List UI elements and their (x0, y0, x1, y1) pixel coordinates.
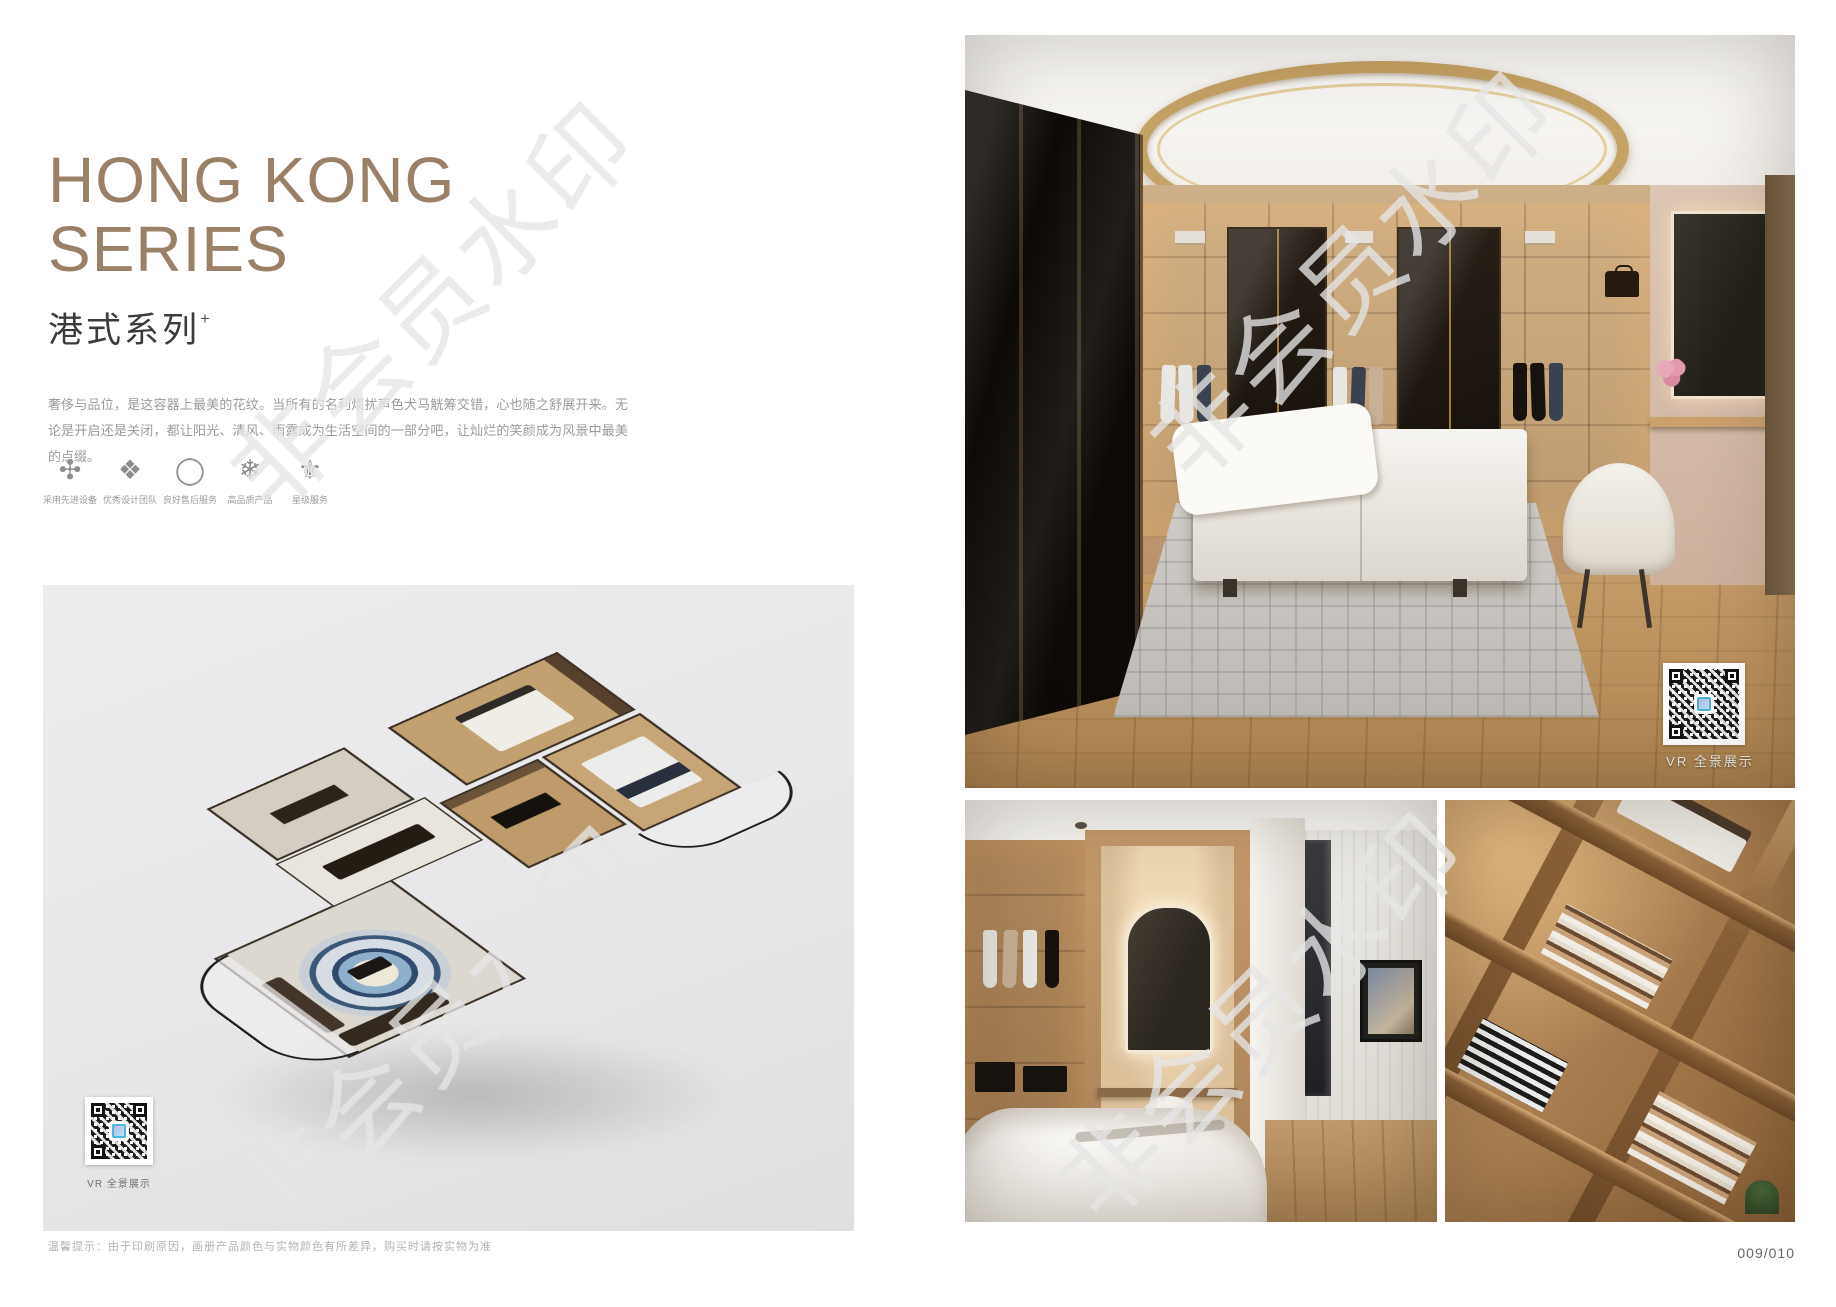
vr-cube-logo-icon (109, 1121, 129, 1141)
series-title-line1: HONG KONG (48, 146, 455, 215)
series-subtitle-cn: 港式系列+ (48, 302, 213, 353)
qr-finder (1669, 669, 1683, 683)
hanging-garment (1530, 363, 1546, 421)
folded-clothes (1345, 231, 1373, 243)
hanging-garment (1045, 930, 1059, 988)
dark-glass-wardrobe (965, 90, 1143, 735)
desk (490, 792, 561, 828)
vr-cube-logo-icon (1694, 694, 1714, 714)
vanity-chair (1563, 463, 1675, 628)
series-title-line2: SERIES (48, 215, 455, 284)
shelf-closeup-photo (1445, 800, 1795, 1222)
vr-badge-label: VR 全景展示 (69, 1175, 169, 1190)
qr-finder (1669, 725, 1683, 739)
qr-finder (91, 1103, 105, 1117)
tall-mirror-frame (1765, 175, 1795, 595)
hanging-garment (1513, 363, 1527, 421)
feature-label: 良好售后服务 (160, 493, 220, 506)
snowflake-icon: ❄ (220, 452, 280, 488)
feature-icon-row: ✣ 采用先进设备 ❖ 优秀设计团队 ◯ 良好售后服务 ❄ 高品质产品 ⚜ 星级服… (40, 452, 340, 506)
shelf-grid (1445, 800, 1795, 1222)
flower-vase (1653, 357, 1687, 387)
series-subtitle-text: 港式系列 (48, 311, 200, 350)
potted-plant (1745, 1180, 1779, 1214)
handbag (1605, 271, 1639, 297)
isometric-floor-plan (84, 652, 822, 1058)
vr-qr-code (1663, 663, 1745, 745)
dark-glass-partition (1305, 840, 1331, 1096)
page-number: 009/010 (1655, 1245, 1795, 1261)
wall-art-frame (1360, 960, 1422, 1042)
feature-item: ⚜ 星级服务 (280, 452, 340, 506)
diamond-ornament-icon: ❖ (100, 452, 160, 488)
led-arch-mirror (1125, 905, 1213, 1053)
folded-clothes (1525, 231, 1555, 243)
folded-clothes (1175, 231, 1205, 243)
feature-label: 高品质产品 (220, 493, 280, 506)
qr-finder (133, 1103, 147, 1117)
fabric-fold (1075, 1119, 1225, 1142)
corridor-floor (1265, 1120, 1437, 1222)
floor-plan-panel: VR 全景展示 (43, 585, 854, 1231)
bed-corner (965, 1108, 1267, 1222)
island-bed (1193, 429, 1527, 581)
hanging-garment (1002, 930, 1018, 988)
hanging-garment (1160, 365, 1176, 423)
feature-label: 星级服务 (280, 493, 340, 506)
storage-box (975, 1062, 1015, 1092)
quatrefoil-ornament-icon: ✣ (40, 452, 100, 488)
hanging-garment (1197, 365, 1211, 423)
qr-finder (1725, 669, 1739, 683)
vr-badge-label: VR 全景展示 (1655, 751, 1765, 770)
series-title: HONG KONG SERIES (48, 146, 455, 284)
feature-item: ❖ 优秀设计团队 (100, 452, 160, 506)
hanging-garment (1549, 363, 1563, 421)
kitchen-island (270, 785, 349, 825)
catalog-page: HONG KONG SERIES 港式系列+ 奢侈与品位，是这容器上最美的花纹。… (0, 0, 1836, 1307)
feature-item: ✣ 采用先进设备 (40, 452, 100, 506)
walkin-closet-photo: VR 全景展示 (965, 35, 1795, 788)
dressing-area-photo (965, 800, 1437, 1222)
qr-finder (91, 1145, 105, 1159)
print-disclaimer: 温馨提示：由于印刷原因，画册产品颜色与实物颜色有所差异，购买时请按实物为准 (48, 1238, 492, 1254)
vr-qr-code (85, 1097, 153, 1165)
ceiling-spotlight (1075, 822, 1087, 829)
hanging-garment (1178, 365, 1194, 423)
feature-label: 采用先进设备 (40, 493, 100, 506)
feature-label: 优秀设计团队 (100, 493, 160, 506)
plus-mark: + (200, 309, 213, 328)
ring-ornament-icon: ◯ (160, 452, 220, 488)
fleur-ornament-icon: ⚜ (280, 452, 340, 488)
hanging-garment (983, 930, 997, 988)
feature-item: ◯ 良好售后服务 (160, 452, 220, 506)
feature-item: ❄ 高品质产品 (220, 452, 280, 506)
hanging-garment (1023, 930, 1037, 988)
storage-box (1023, 1066, 1067, 1092)
hanging-garment (1369, 367, 1383, 425)
